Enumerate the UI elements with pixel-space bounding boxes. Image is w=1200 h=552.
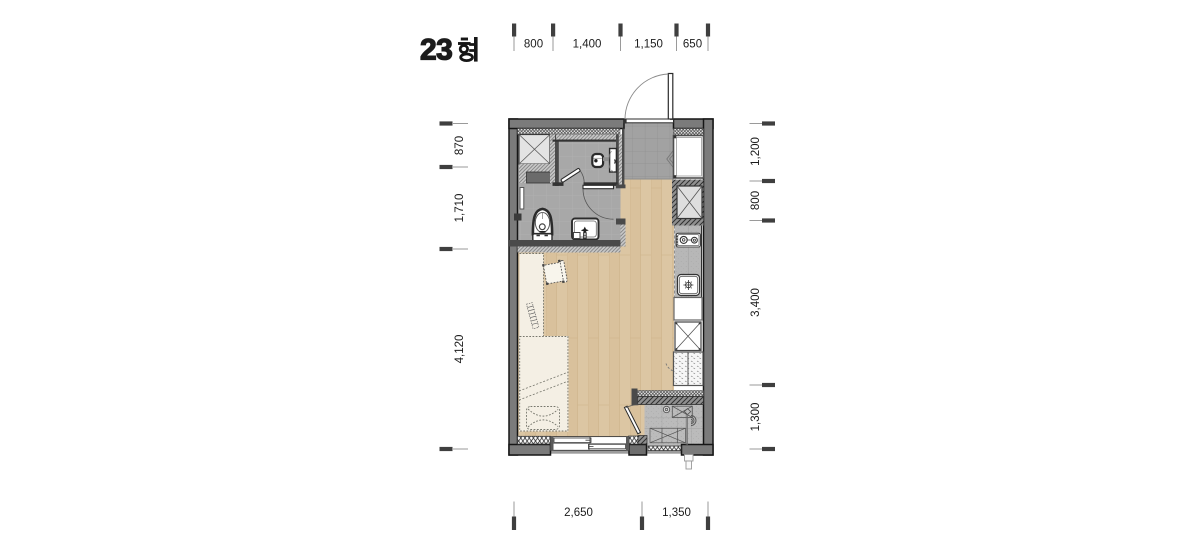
svg-text:1,400: 1,400: [573, 39, 602, 51]
svg-text:1,150: 1,150: [634, 39, 663, 51]
svg-text:1,710: 1,710: [454, 194, 466, 223]
svg-text:650: 650: [683, 39, 702, 51]
svg-text:23: 23: [420, 34, 452, 67]
svg-text:4,120: 4,120: [454, 335, 466, 364]
svg-text:800: 800: [750, 191, 762, 210]
svg-text:3,400: 3,400: [750, 288, 762, 317]
svg-text:800: 800: [524, 39, 543, 51]
svg-text:1,200: 1,200: [750, 137, 762, 166]
svg-text:2,650: 2,650: [564, 507, 593, 519]
svg-text:1,350: 1,350: [662, 507, 691, 519]
svg-text:870: 870: [454, 136, 466, 155]
svg-text:1,300: 1,300: [750, 403, 762, 432]
